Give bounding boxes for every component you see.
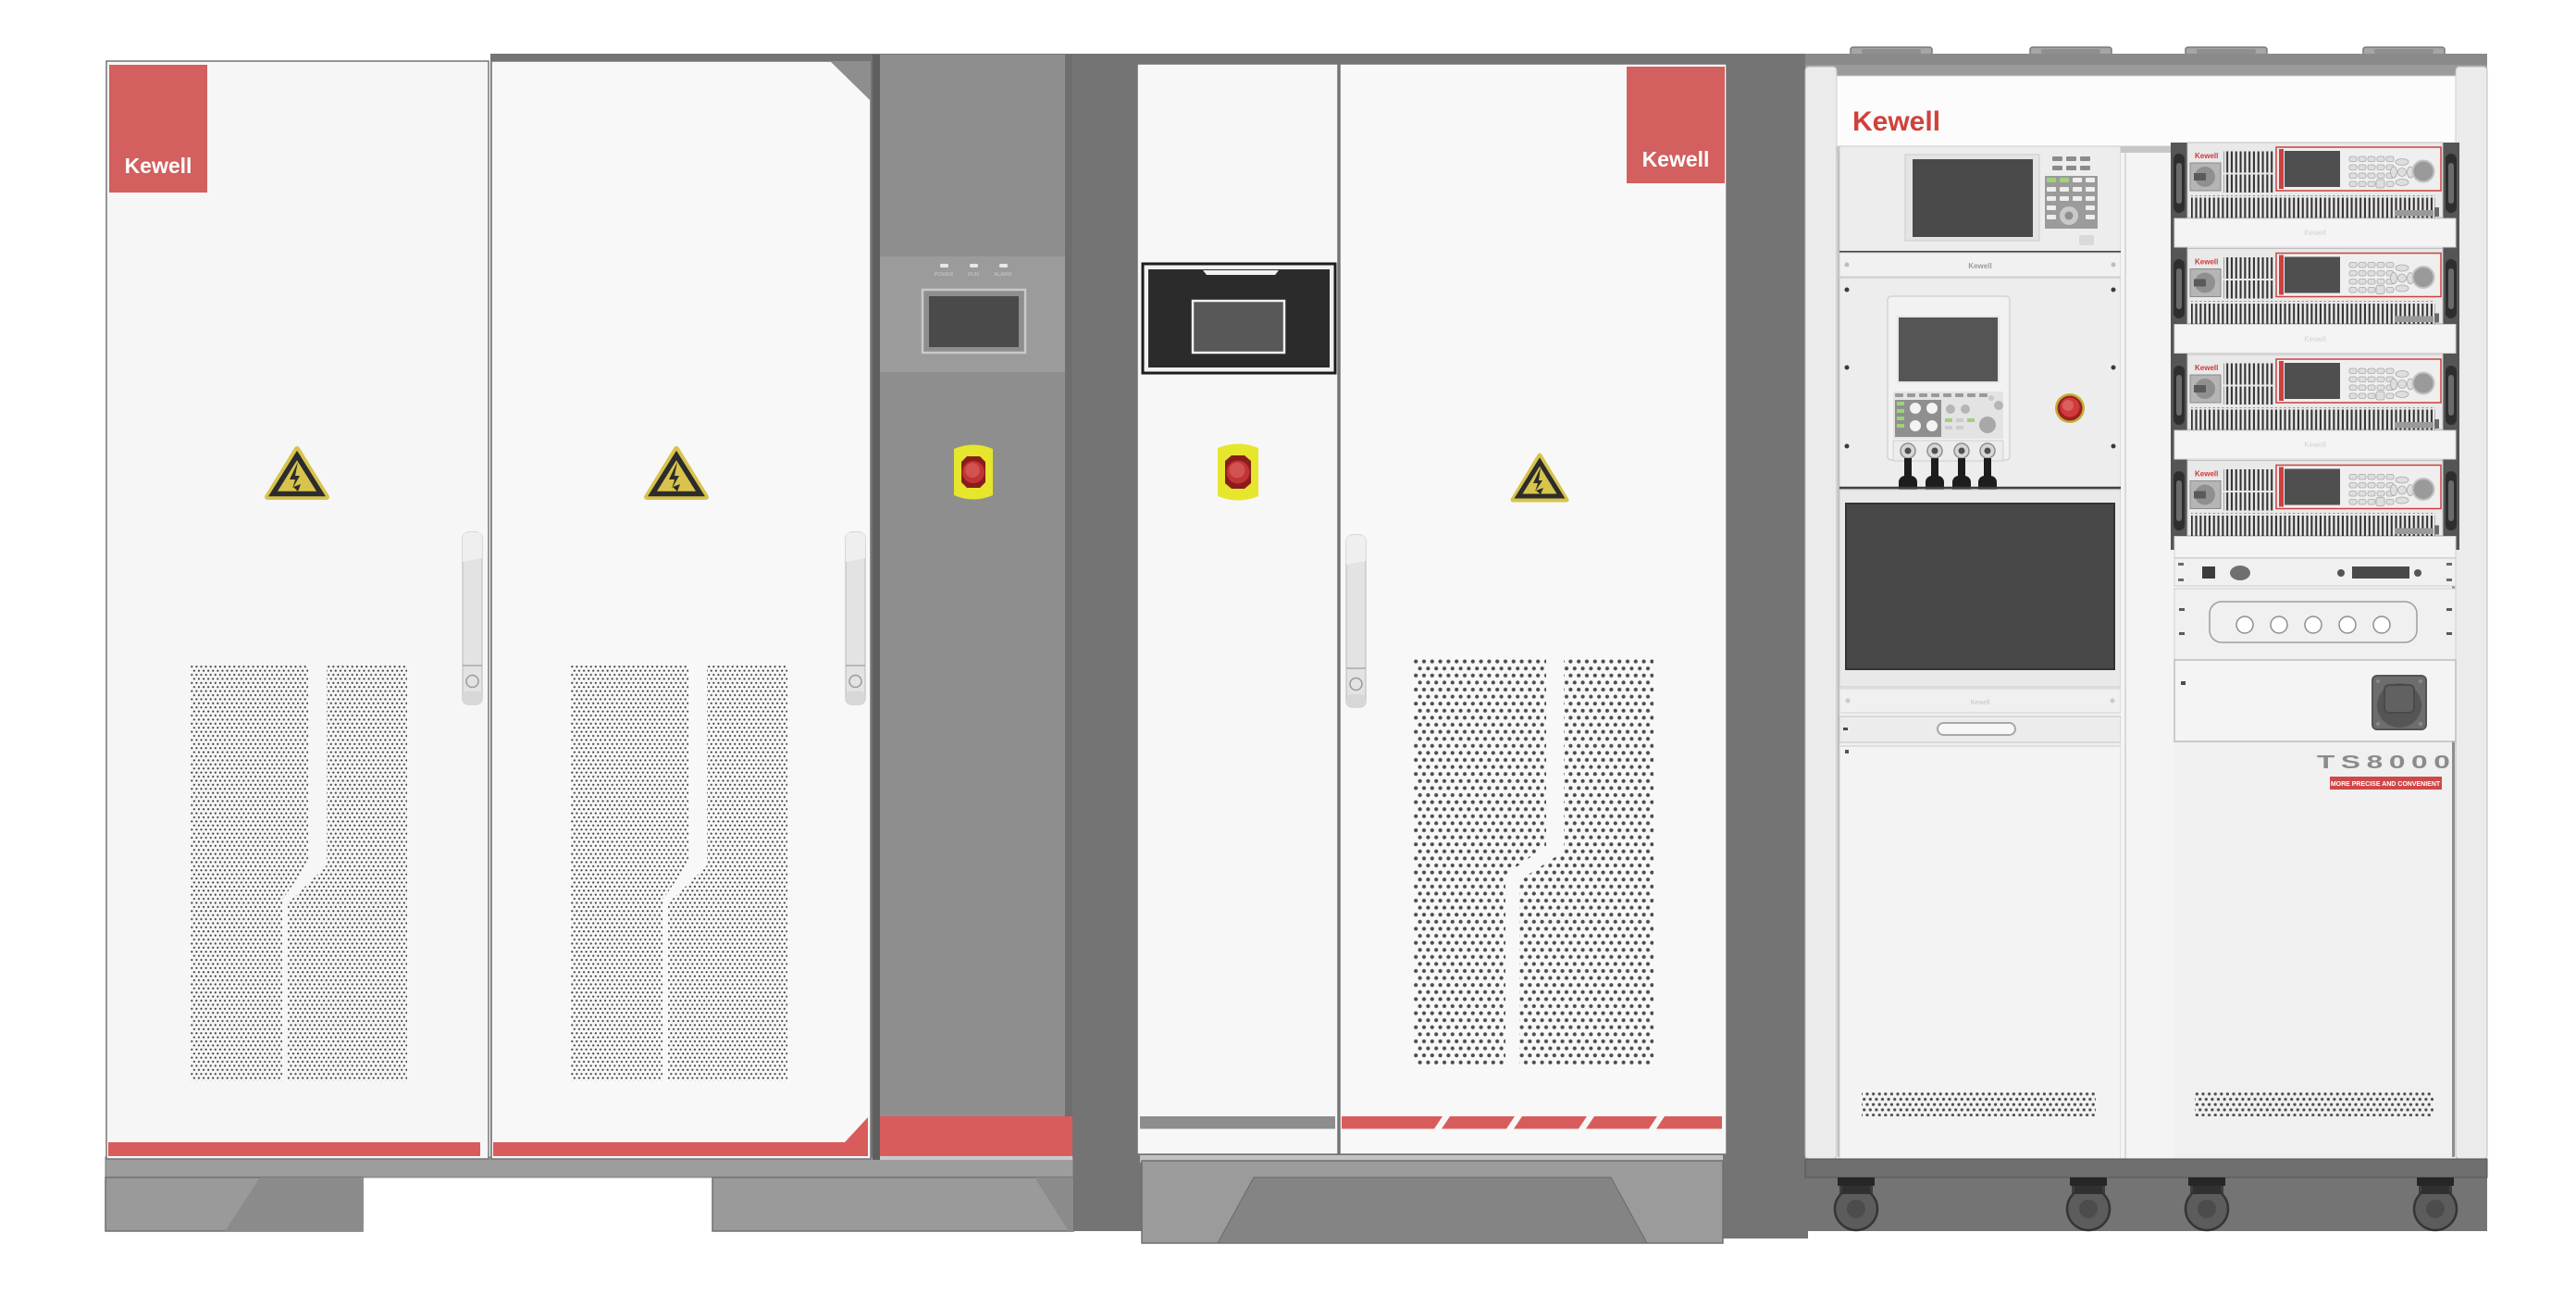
svg-text:ALARM: ALARM bbox=[995, 272, 1012, 278]
svg-text:Kewell: Kewell bbox=[1852, 106, 1940, 137]
svg-text:Kewell: Kewell bbox=[2304, 335, 2326, 343]
svg-text:MORE PRECISE AND CONVENIENT: MORE PRECISE AND CONVENIENT bbox=[2331, 781, 2441, 788]
svg-text:Kewell: Kewell bbox=[125, 154, 192, 178]
svg-text:Kewell: Kewell bbox=[2195, 470, 2218, 479]
svg-text:Kewell: Kewell bbox=[2304, 229, 2326, 237]
svg-text:Kewell: Kewell bbox=[1971, 700, 1990, 706]
svg-text:RUN: RUN bbox=[968, 272, 979, 278]
svg-text:Kewell: Kewell bbox=[2195, 364, 2218, 372]
svg-text:POWER: POWER bbox=[935, 272, 954, 278]
svg-text:Kewell: Kewell bbox=[2304, 441, 2326, 449]
svg-text:Kewell: Kewell bbox=[1968, 262, 1991, 270]
svg-text:Kewell: Kewell bbox=[1642, 147, 1710, 171]
svg-text:TS8000: TS8000 bbox=[2317, 752, 2456, 773]
svg-text:Kewell: Kewell bbox=[2195, 258, 2218, 267]
svg-text:Kewell: Kewell bbox=[2195, 152, 2218, 160]
